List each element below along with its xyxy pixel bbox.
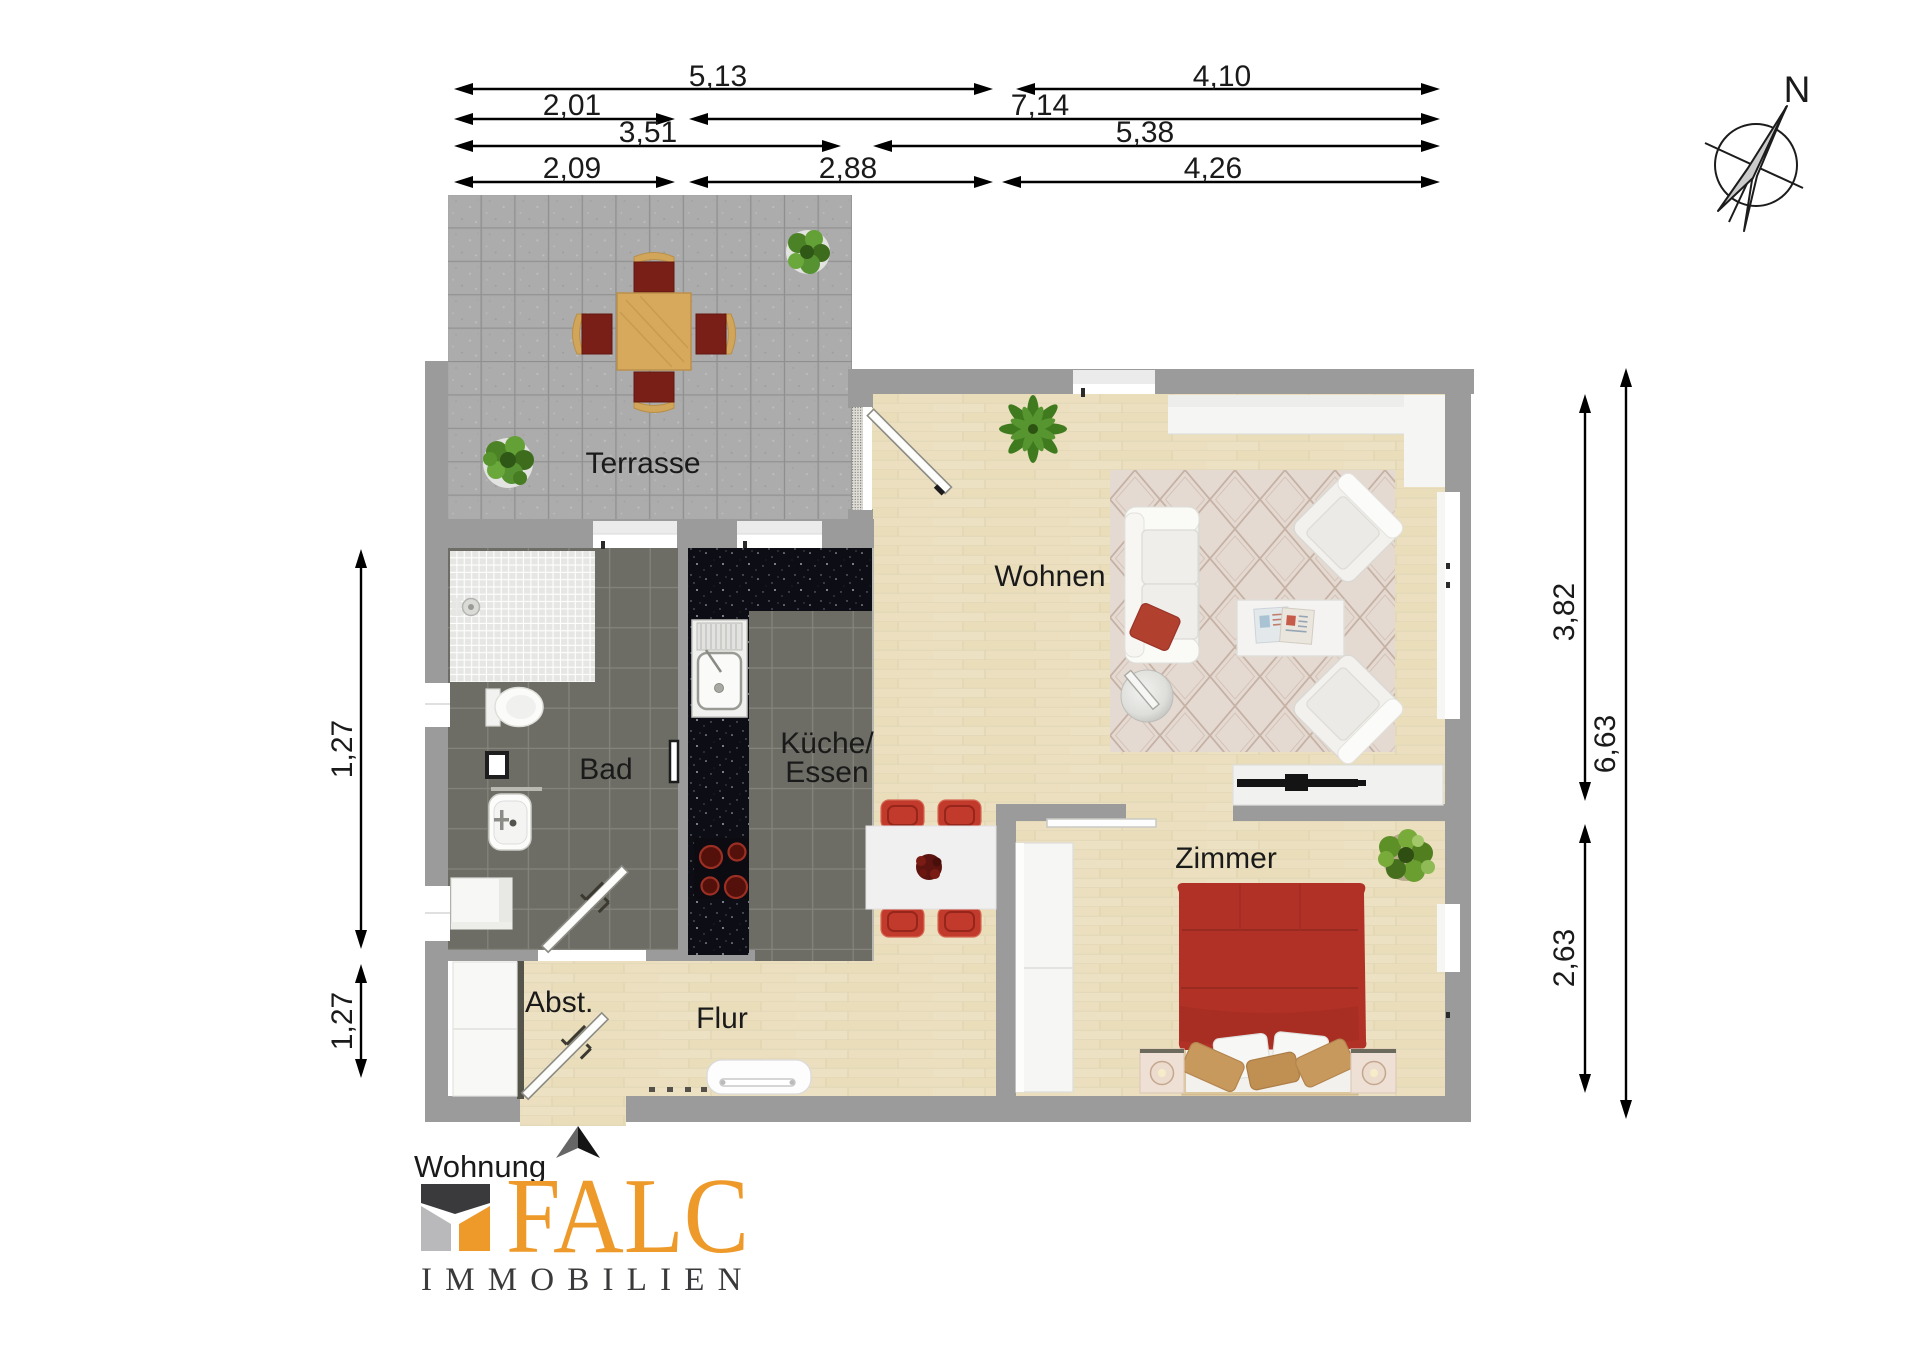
svg-text:Flur: Flur [696,1002,748,1035]
svg-text:N: N [1784,69,1811,110]
svg-text:2,63: 2,63 [1548,929,1581,987]
svg-text:3,82: 3,82 [1548,583,1581,641]
svg-text:IMMOBILIEN: IMMOBILIEN [421,1262,755,1298]
svg-text:6,63: 6,63 [1589,715,1622,773]
svg-text:FALC: FALC [506,1156,749,1276]
svg-text:1,27: 1,27 [326,720,359,778]
svg-text:2,01: 2,01 [543,89,601,122]
svg-text:Abst.: Abst. [525,986,593,1019]
svg-text:2,88: 2,88 [819,152,877,185]
svg-text:5,13: 5,13 [689,60,747,93]
svg-text:Wohnen: Wohnen [994,560,1105,593]
svg-text:7,14: 7,14 [1011,89,1069,122]
svg-text:5,38: 5,38 [1116,116,1174,149]
svg-text:1,27: 1,27 [326,992,359,1050]
svg-text:Zimmer: Zimmer [1175,842,1277,875]
svg-text:2,09: 2,09 [543,152,601,185]
svg-text:4,10: 4,10 [1193,60,1251,93]
svg-text:Essen: Essen [785,756,868,789]
svg-text:4,26: 4,26 [1184,152,1242,185]
svg-text:3,51: 3,51 [619,116,677,149]
svg-text:Terrasse: Terrasse [585,447,700,480]
svg-text:Bad: Bad [579,753,632,786]
